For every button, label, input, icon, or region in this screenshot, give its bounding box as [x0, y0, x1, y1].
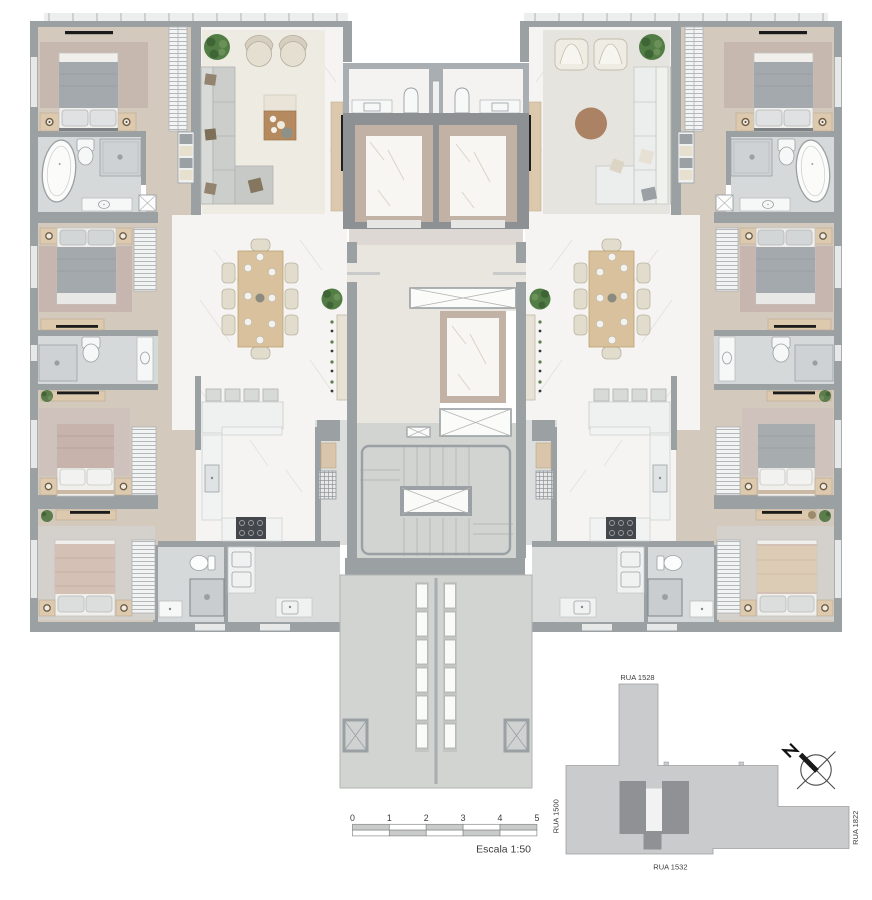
- svg-text:0: 0: [350, 813, 355, 823]
- svg-text:2: 2: [424, 813, 429, 823]
- svg-text:4: 4: [498, 813, 503, 823]
- svg-text:RUA 1500: RUA 1500: [551, 799, 560, 833]
- svg-text:3: 3: [461, 813, 466, 823]
- svg-text:RUA 1822: RUA 1822: [851, 811, 860, 845]
- svg-text:RUA 1528: RUA 1528: [620, 673, 654, 682]
- svg-text:Escala 1:50: Escala 1:50: [476, 844, 531, 856]
- svg-text:1: 1: [387, 813, 392, 823]
- svg-text:5: 5: [534, 813, 539, 823]
- svg-text:RUA 1532: RUA 1532: [653, 863, 687, 872]
